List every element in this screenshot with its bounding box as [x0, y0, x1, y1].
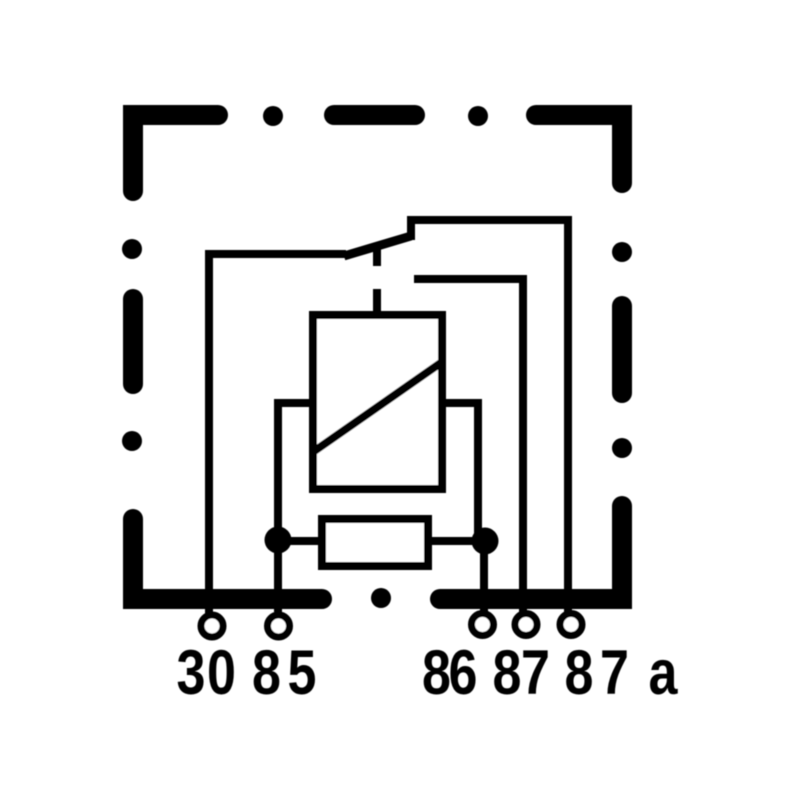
svg-text:8: 8: [422, 637, 451, 708]
svg-text:a: a: [649, 637, 679, 708]
svg-text:7: 7: [521, 637, 550, 708]
svg-text:8: 8: [493, 637, 522, 708]
svg-text:5: 5: [288, 637, 317, 708]
svg-text:3: 3: [177, 637, 206, 708]
svg-text:8: 8: [565, 637, 594, 708]
svg-text:7: 7: [600, 637, 629, 708]
svg-text:6: 6: [449, 637, 478, 708]
svg-text:8: 8: [252, 637, 281, 708]
svg-text:0: 0: [207, 637, 236, 708]
